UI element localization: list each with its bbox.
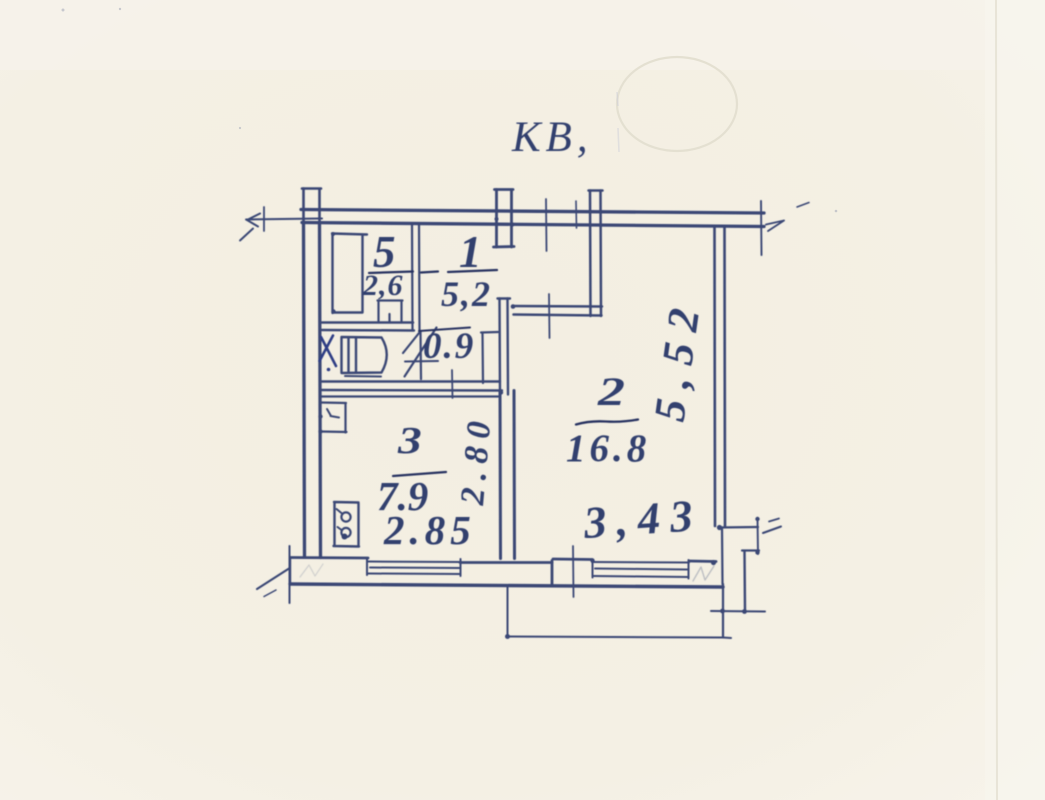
svg-text:2: 2 (597, 370, 625, 414)
svg-text:3: 3 (397, 420, 422, 462)
svg-text:16.8: 16.8 (566, 427, 650, 470)
svg-text:2,6: 2,6 (362, 269, 404, 302)
svg-text:1: 1 (459, 227, 482, 277)
svg-text:5,2: 5,2 (441, 274, 492, 314)
svg-text:0.9: 0.9 (423, 326, 475, 367)
svg-text:КВ,: КВ, (511, 114, 593, 161)
svg-text:2.85: 2.85 (383, 507, 476, 553)
svg-text:3,43: 3,43 (581, 490, 704, 548)
